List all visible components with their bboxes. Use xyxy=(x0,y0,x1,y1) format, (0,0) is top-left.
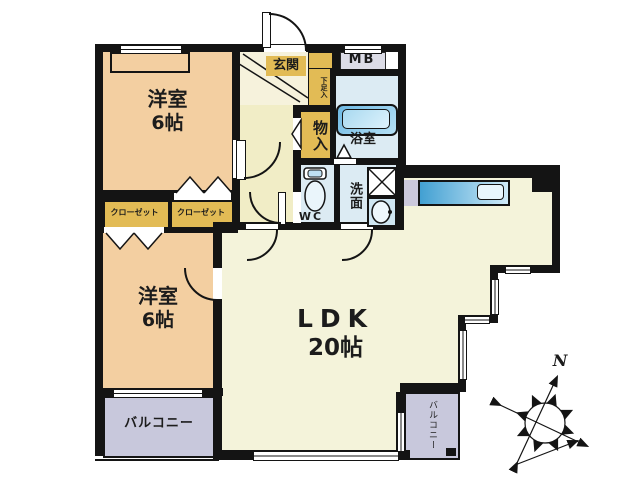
closet-right-fold-mark xyxy=(176,177,204,193)
entrance-label: 玄関 xyxy=(266,56,306,76)
hall-ldk-door-arc xyxy=(247,230,277,260)
meter-box-label: MB xyxy=(340,53,384,68)
bedroom1-name: 洋室 xyxy=(110,88,225,111)
storage-label: 物入 xyxy=(309,116,328,156)
entrance-door-arc xyxy=(269,14,306,51)
balcony-right-label: バルコニー xyxy=(421,397,437,453)
closet-left-label: クローゼット xyxy=(104,208,165,217)
floor-plan: 洋室 6帖 洋室 6帖 LDK 20帖 クローゼット クローゼット 玄関 MB … xyxy=(0,0,640,480)
toilet-tank-inner xyxy=(308,170,322,177)
wc-door-arc xyxy=(250,192,281,223)
bed1-door-arc xyxy=(244,142,280,178)
toilet-label: WC xyxy=(296,211,326,224)
shoe-cabinet-label: 下足入 xyxy=(312,71,328,103)
balcony-left-label: バルコニー xyxy=(106,417,212,432)
wash-basin-faucet xyxy=(388,210,392,214)
bedroom1-size: 6帖 xyxy=(110,113,225,135)
closet-left-fold-mark xyxy=(106,233,134,249)
bathroom-label: 浴室 xyxy=(330,133,396,148)
compass-north-label: N xyxy=(550,352,570,370)
wash-basin-icon xyxy=(372,201,390,223)
closet-right-label: クローゼット xyxy=(171,208,231,217)
closet-left-fold-mark2 xyxy=(134,233,162,249)
bedroom2-size: 6帖 xyxy=(103,310,213,332)
ldk-size: 20帖 xyxy=(248,335,423,361)
closet-right-fold-mark2 xyxy=(204,177,232,193)
washroom-label: 洗面 xyxy=(343,170,361,222)
compass-rose xyxy=(500,377,587,465)
wash-ldk-door-arc xyxy=(342,230,372,260)
bedroom2-name: 洋室 xyxy=(103,285,213,308)
toilet-bowl-icon xyxy=(305,181,325,211)
storage-door-mark xyxy=(292,120,301,148)
ldk-name: LDK xyxy=(248,305,423,334)
